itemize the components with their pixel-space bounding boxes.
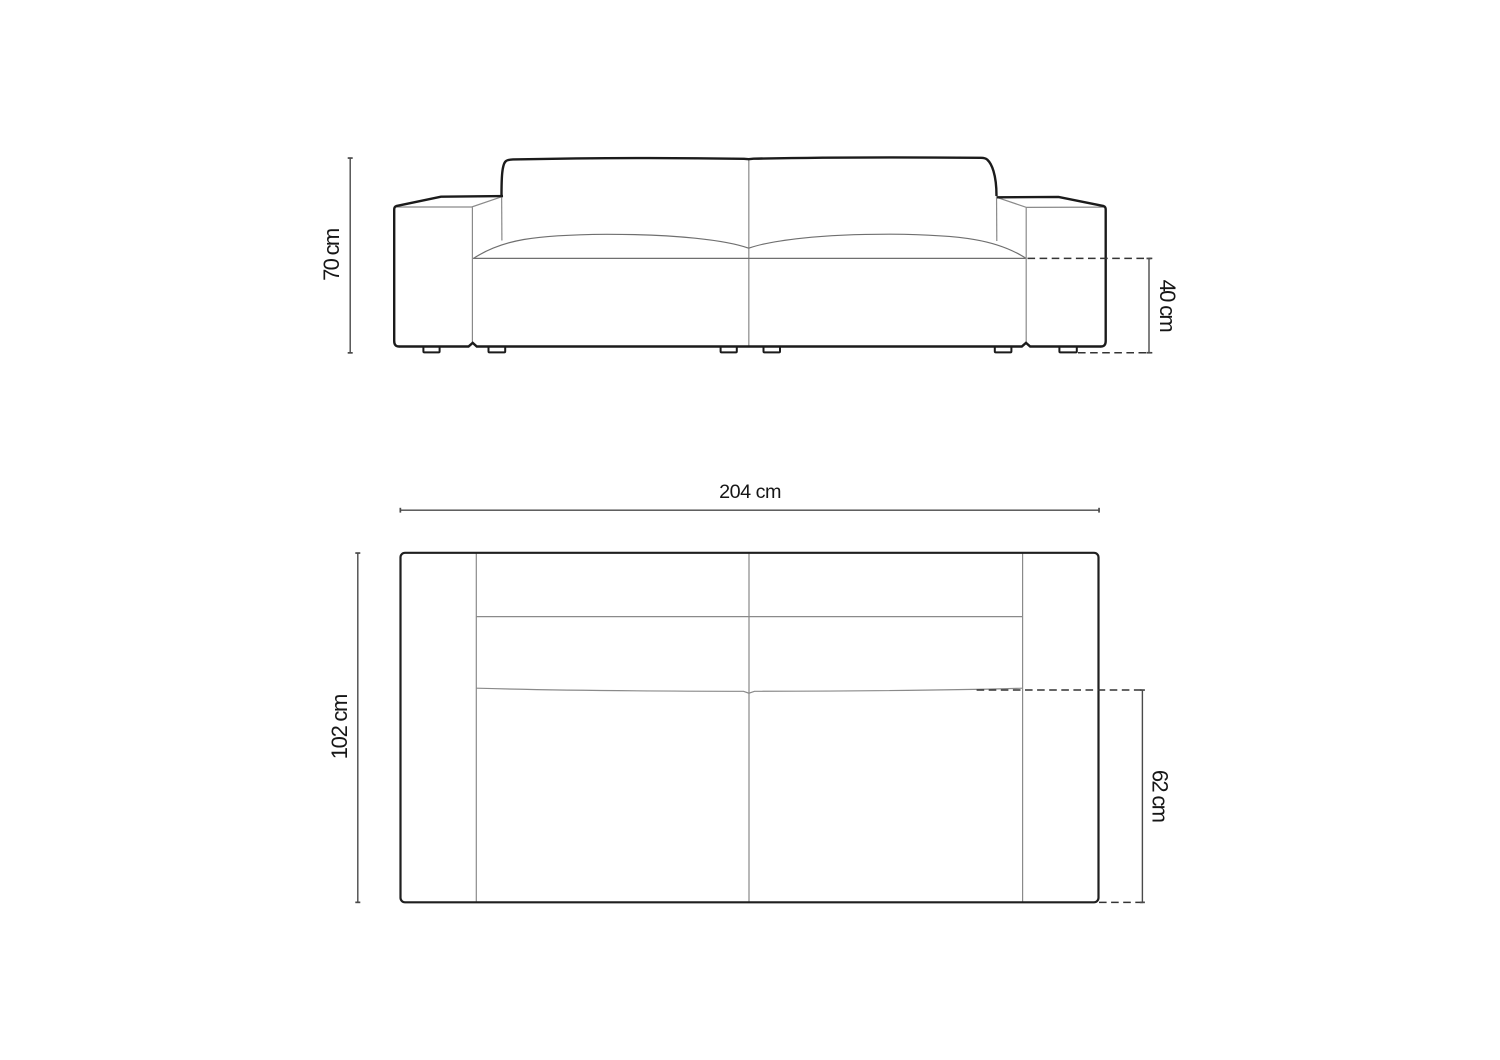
svg-text:204 cm: 204 cm — [719, 481, 781, 503]
svg-text:62 cm: 62 cm — [1148, 770, 1173, 822]
svg-text:102 cm: 102 cm — [327, 695, 352, 759]
svg-text:40 cm: 40 cm — [1155, 280, 1180, 332]
svg-text:70 cm: 70 cm — [319, 229, 344, 281]
